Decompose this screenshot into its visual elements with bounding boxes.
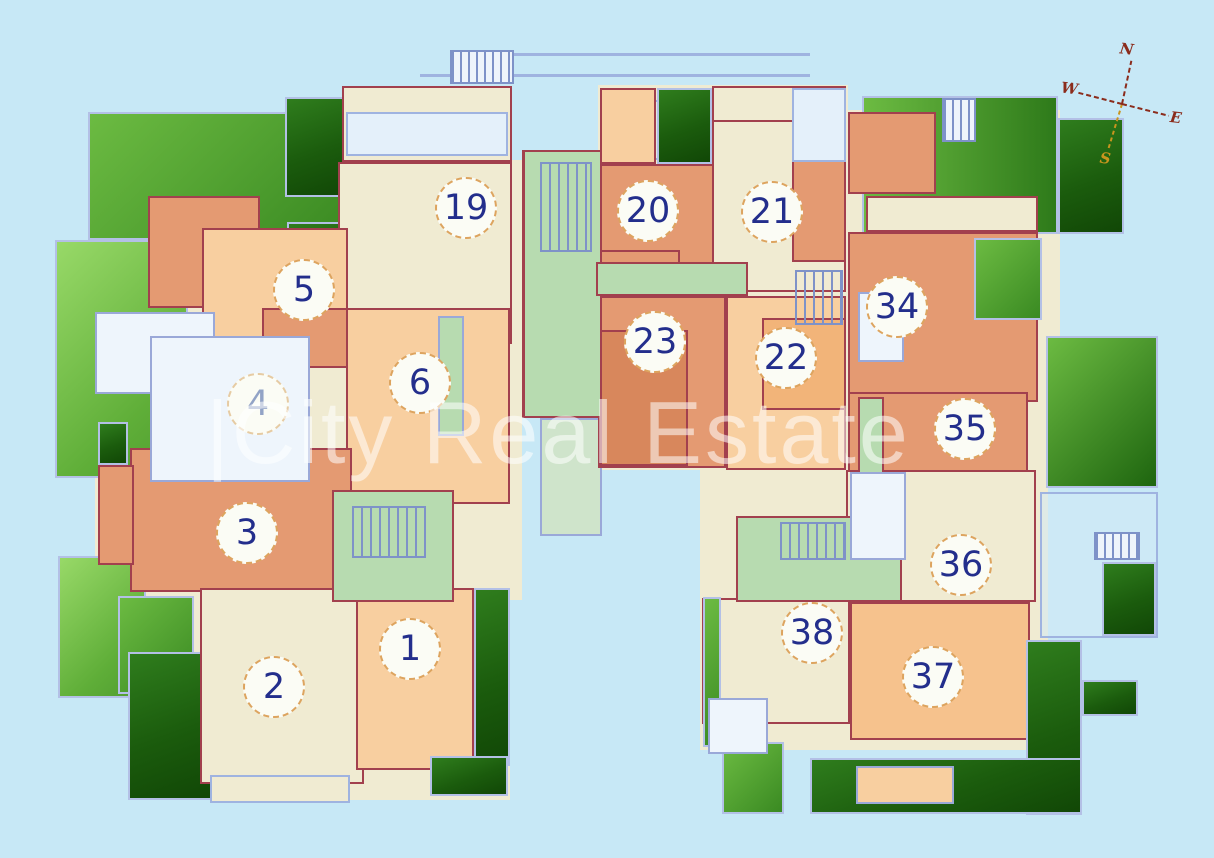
compass-east-label: E: [1168, 108, 1183, 127]
corridor: [858, 397, 884, 481]
stairs-icon: [540, 162, 592, 252]
unit-circle-35[interactable]: 35: [934, 398, 996, 460]
balcony: [792, 88, 846, 162]
corridor: [540, 418, 602, 536]
unit-circle-1[interactable]: 1: [379, 618, 441, 680]
apartment-room: [600, 88, 656, 164]
terrace: [657, 88, 712, 164]
apartment-room: [98, 465, 134, 565]
unit-circle-34[interactable]: 34: [866, 276, 928, 338]
unit-circle-2[interactable]: 2: [243, 656, 305, 718]
unit-circle-5[interactable]: 5: [273, 259, 335, 321]
unit-circle-21[interactable]: 21: [741, 181, 803, 243]
balcony-railing: [942, 98, 976, 142]
terrace: [1102, 562, 1156, 636]
terrace-edge: [505, 53, 810, 56]
compass-rose-icon: N W E S: [1052, 31, 1191, 177]
unit-circle-6[interactable]: 6: [389, 352, 451, 414]
unit-circle-23[interactable]: 23: [624, 311, 686, 373]
terrace: [1046, 336, 1158, 488]
floor-plan-canvas: 19 5 4 6 3 2 1 20 21 23 22 34 35 36 38 3…: [0, 0, 1214, 858]
balcony: [210, 775, 350, 803]
terrace: [1082, 680, 1138, 716]
compass-west-label: W: [1060, 79, 1081, 99]
apartment-room: [848, 112, 936, 194]
stairs-icon: [352, 506, 426, 558]
unit-circle-38[interactable]: 38: [781, 602, 843, 664]
unit-circle-22[interactable]: 22: [755, 327, 817, 389]
compass-north-label: N: [1118, 39, 1136, 59]
terrace: [974, 238, 1042, 320]
apartment-room: [866, 196, 1038, 232]
unit-circle-19[interactable]: 19: [435, 177, 497, 239]
apartment-room: [850, 472, 906, 560]
balcony: [856, 766, 954, 804]
unit-circle-4[interactable]: 4: [227, 373, 289, 435]
balcony: [708, 698, 768, 754]
unit-circle-37[interactable]: 37: [902, 646, 964, 708]
unit-circle-3[interactable]: 3: [216, 502, 278, 564]
stairs-icon: [780, 522, 846, 560]
stairs-icon: [795, 270, 843, 325]
compass-south-label: S: [1099, 149, 1112, 168]
balcony: [346, 112, 508, 156]
terrace: [430, 756, 508, 796]
balcony-railing: [450, 50, 514, 84]
terrace: [474, 588, 510, 766]
unit-circle-36[interactable]: 36: [930, 534, 992, 596]
terrace: [98, 422, 128, 465]
corridor: [596, 262, 748, 296]
balcony-railing: [1094, 532, 1140, 560]
unit-circle-20[interactable]: 20: [617, 180, 679, 242]
